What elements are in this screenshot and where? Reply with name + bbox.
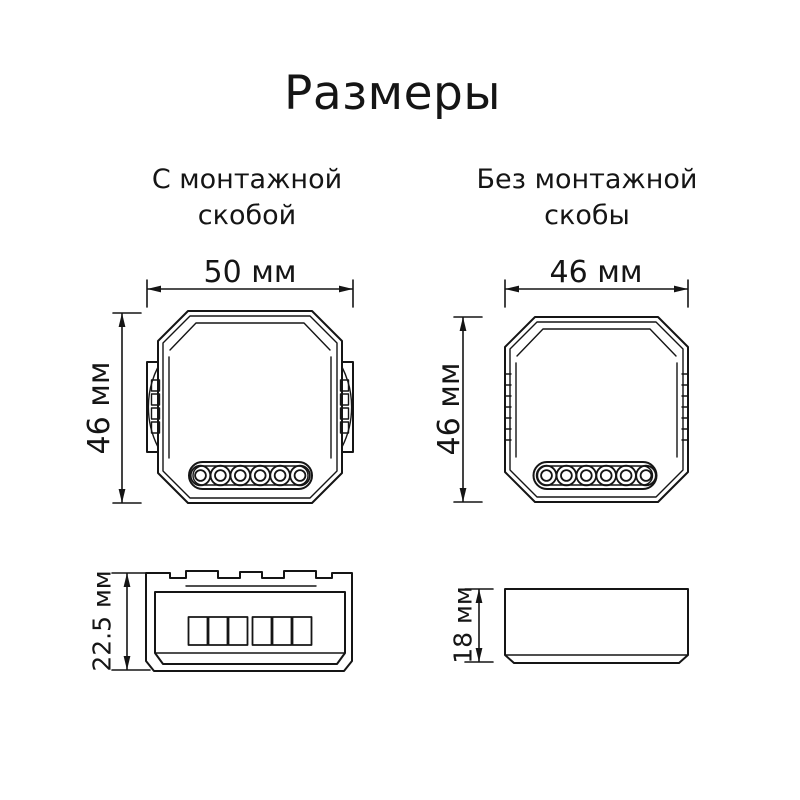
column-heading-without-bracket-line2: скобы — [462, 198, 712, 234]
dimensions-diagram-page: Размеры С монтажной скобой Без монтажной… — [0, 0, 800, 800]
column-heading-without-bracket: Без монтажной скобы — [462, 162, 712, 234]
dim-label-height-46mm-left: 46 мм — [85, 362, 115, 455]
side-view-without-bracket-drawing — [505, 589, 688, 663]
page-title: Размеры — [0, 66, 785, 121]
dim-label-depth-22-5mm: 22.5 мм — [90, 570, 115, 671]
dim-line-height-46-left — [113, 313, 141, 503]
column-heading-with-bracket-line2: скобой — [122, 198, 372, 234]
terminal-slots — [189, 617, 312, 645]
terminal-block — [189, 462, 312, 489]
column-heading-with-bracket-line1: С монтажной — [122, 162, 372, 198]
side-view-with-bracket-drawing — [146, 571, 352, 671]
dim-label-width-46mm: 46 мм — [496, 258, 696, 288]
dim-label-width-50mm: 50 мм — [150, 258, 350, 288]
dim-label-height-46mm-right: 46 мм — [435, 363, 465, 456]
column-heading-with-bracket: С монтажной скобой — [122, 162, 372, 234]
top-view-with-bracket-drawing — [147, 311, 353, 503]
column-heading-without-bracket-line1: Без монтажной — [462, 162, 712, 198]
terminal-block — [534, 462, 657, 489]
top-view-without-bracket-drawing — [505, 317, 688, 502]
dim-label-depth-18mm: 18 мм — [451, 586, 476, 663]
dim-line-depth-22-5 — [112, 573, 150, 670]
